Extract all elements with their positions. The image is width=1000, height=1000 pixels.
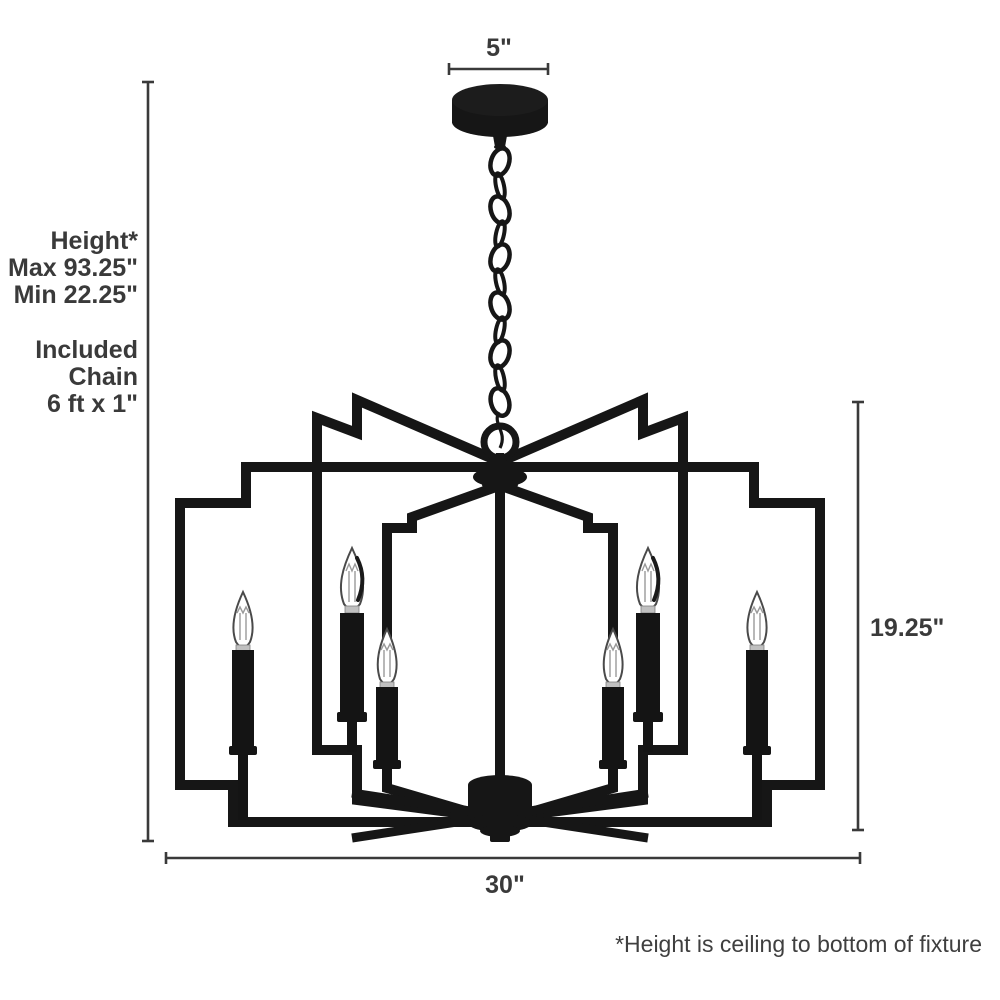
dimension-line-overall-height [142,82,154,841]
height-note-line-3: Min 22.25" [8,282,138,309]
dimension-line-fixture-width [166,852,860,864]
inner-arm-right [493,483,613,820]
fixture-height-label: 19.25" [870,615,944,642]
candle-3 [373,629,401,790]
height-note-line-1: Height* [8,228,138,255]
chain-note-line-1: Included [35,337,138,364]
bulb [604,629,623,685]
height-note-line-2: Max 93.25" [8,255,138,282]
chandelier-line-drawing [0,0,1000,1000]
canopy-width-label: 5" [424,35,574,62]
center-rod [495,468,505,788]
bulb [233,592,252,648]
inner-arm-left [387,483,507,820]
hanging-assembly [452,84,548,491]
bulb [747,592,766,648]
canopy [452,84,548,150]
dimension-line-canopy-width [449,63,548,75]
candle-2 [337,548,367,752]
candle-4 [599,629,627,790]
height-note: Height* Max 93.25" Min 22.25" [8,228,138,309]
chain-note-line-2: Chain [35,364,138,391]
candle-5 [633,548,663,752]
chain-note: Included Chain 6 ft x 1" [35,337,138,418]
fixture-width-label: 30" [430,872,580,899]
bulb [378,629,397,685]
dimension-line-fixture-height [852,402,864,830]
bottom-hub [468,775,532,842]
height-footnote: *Height is ceiling to bottom of fixture [615,931,982,958]
chain [487,146,513,448]
product-dimension-diagram: 5" Height* Max 93.25" Min 22.25" Include… [0,0,1000,1000]
chain-note-line-3: 6 ft x 1" [35,391,138,418]
